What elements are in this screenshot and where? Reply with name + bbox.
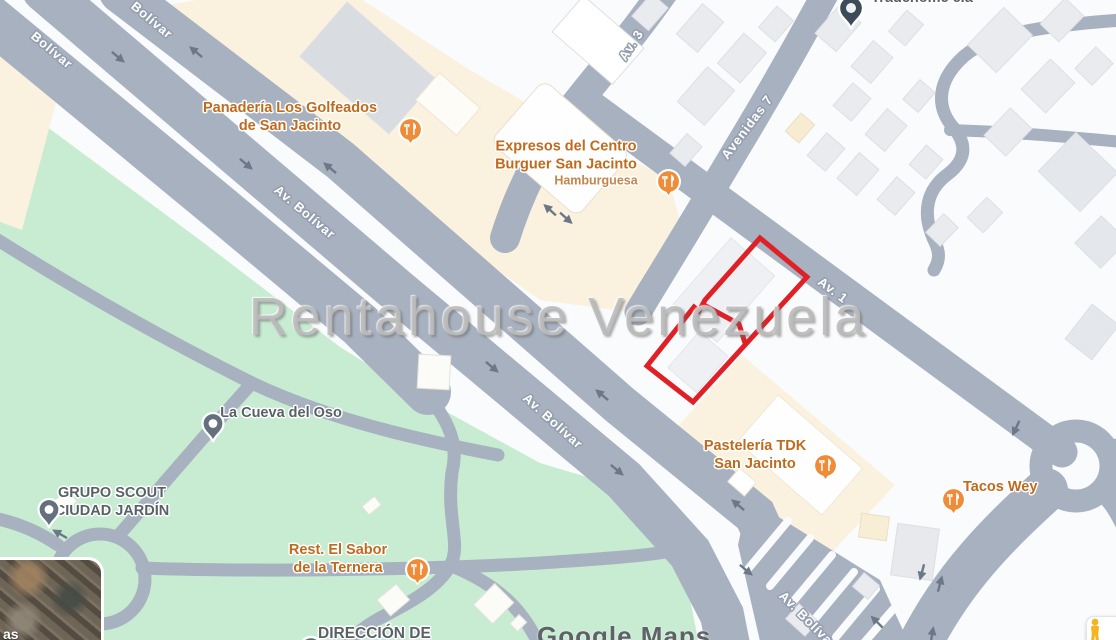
poi-label-pasteleria[interactable]: Pastelería TDK San Jacinto bbox=[704, 437, 806, 473]
google-maps-logo[interactable]: Google Maps bbox=[537, 621, 711, 640]
layers-label: as bbox=[3, 626, 19, 640]
poi-label-direccion[interactable]: DIRECCIÓN DE bbox=[318, 625, 431, 640]
poi-label-grupo-scout[interactable]: GRUPO SCOUT CIUDAD JARDÍN bbox=[55, 484, 169, 520]
pegman-icon bbox=[1087, 617, 1103, 640]
poi-label-rest-el-sabor[interactable]: Rest. El Sabor de la Ternera bbox=[289, 541, 387, 577]
poi-label-expresos[interactable]: Expresos del Centro Burguer San Jacinto … bbox=[494, 138, 637, 189]
poi-sublabel-hamburguesa: Hamburguesa bbox=[554, 174, 637, 189]
poi-label-tacos-wey[interactable]: Tacos Wey bbox=[963, 478, 1037, 496]
poi-label-panaderia[interactable]: Panadería Los Golfeados de San Jacinto bbox=[203, 99, 377, 135]
pegman-control[interactable] bbox=[1086, 616, 1116, 640]
map-canvas[interactable]: Rentahouse Venezuela Bolívar Bolívar Av.… bbox=[0, 0, 1116, 640]
poi-label-la-cueva-del-oso[interactable]: La Cueva del Oso bbox=[220, 404, 342, 422]
poi-label-tradehome[interactable]: Tradehome c.a bbox=[871, 0, 973, 7]
watermark: Rentahouse Venezuela bbox=[0, 286, 1116, 348]
layers-inset-control[interactable]: as bbox=[0, 557, 104, 640]
